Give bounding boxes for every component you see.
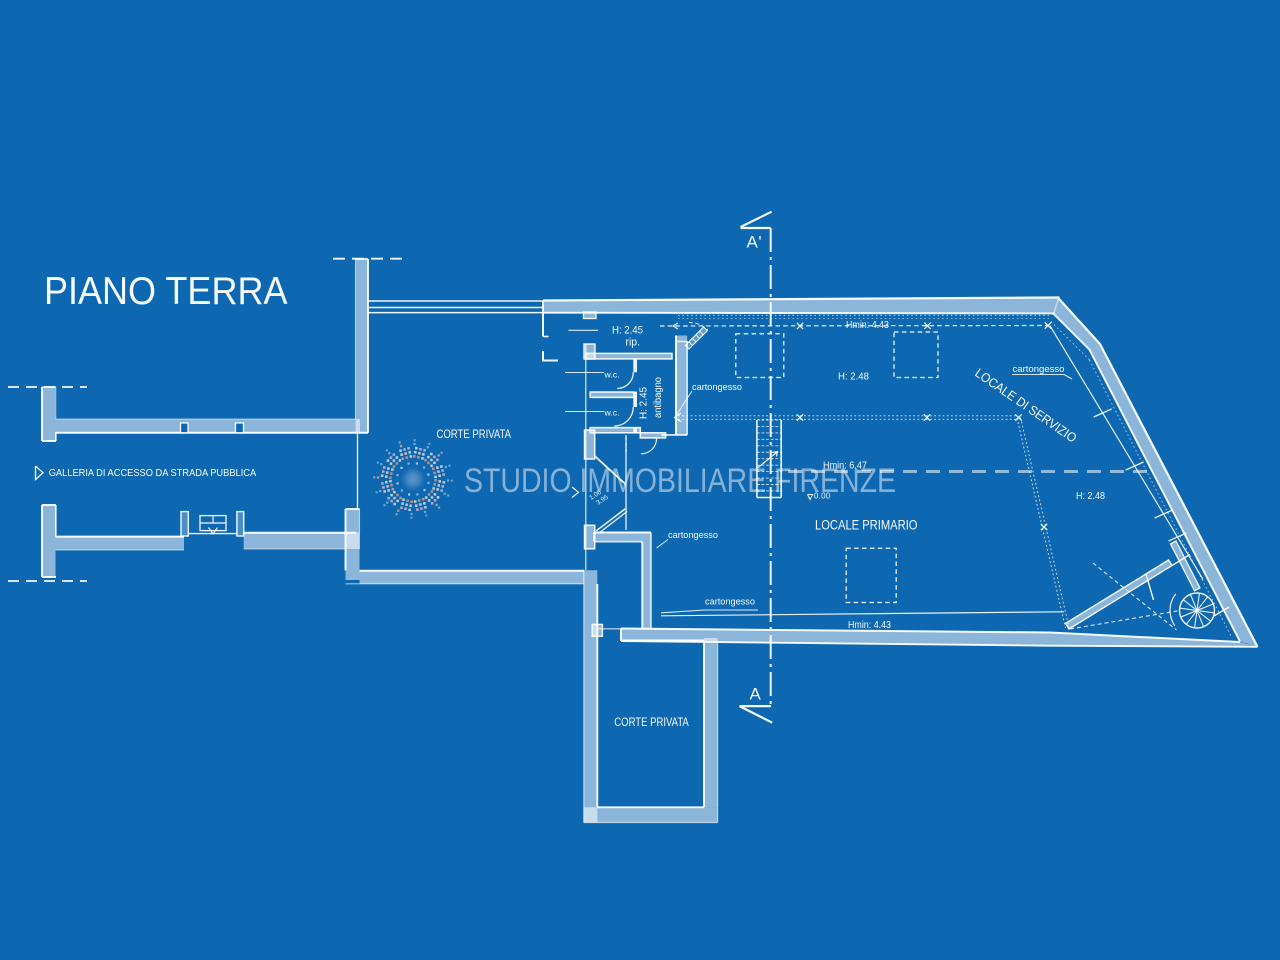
svg-text:w.c.: w.c. [603,370,619,380]
svg-text:antibagno: antibagno [652,377,664,418]
svg-text:H: 2.48: H: 2.48 [1076,490,1105,502]
svg-text:Hmin: 6.47: Hmin: 6.47 [823,460,867,472]
svg-text:LOCALE PRIMARIO: LOCALE PRIMARIO [815,518,918,533]
svg-text:A': A' [747,233,763,252]
svg-text:H: 2.45: H: 2.45 [612,325,643,337]
svg-text:H: 2.48: H: 2.48 [838,371,869,383]
svg-text:CORTE PRIVATA: CORTE PRIVATA [437,429,512,441]
svg-text:PIANO TERRA: PIANO TERRA [44,270,288,313]
svg-text:Hmin: 4.43: Hmin: 4.43 [848,619,891,631]
svg-text:CORTE PRIVATA: CORTE PRIVATA [614,717,689,729]
svg-text:H: 2.45: H: 2.45 [638,387,650,419]
svg-text:cartongesso: cartongesso [1013,364,1065,375]
svg-text:Hmin: 4.43: Hmin: 4.43 [846,319,889,331]
svg-text:cartongesso: cartongesso [705,597,755,608]
svg-text:cartongesso: cartongesso [692,382,742,393]
svg-text:cartongesso: cartongesso [668,530,718,541]
svg-text:GALLERIA DI ACCESSO DA STRADA: GALLERIA DI ACCESSO DA STRADA PUBBLICA [49,467,257,479]
svg-text:A: A [750,685,762,704]
svg-text:w.c.: w.c. [603,408,619,418]
svg-text:rip.: rip. [626,337,641,349]
svg-text:0.00: 0.00 [814,492,831,501]
